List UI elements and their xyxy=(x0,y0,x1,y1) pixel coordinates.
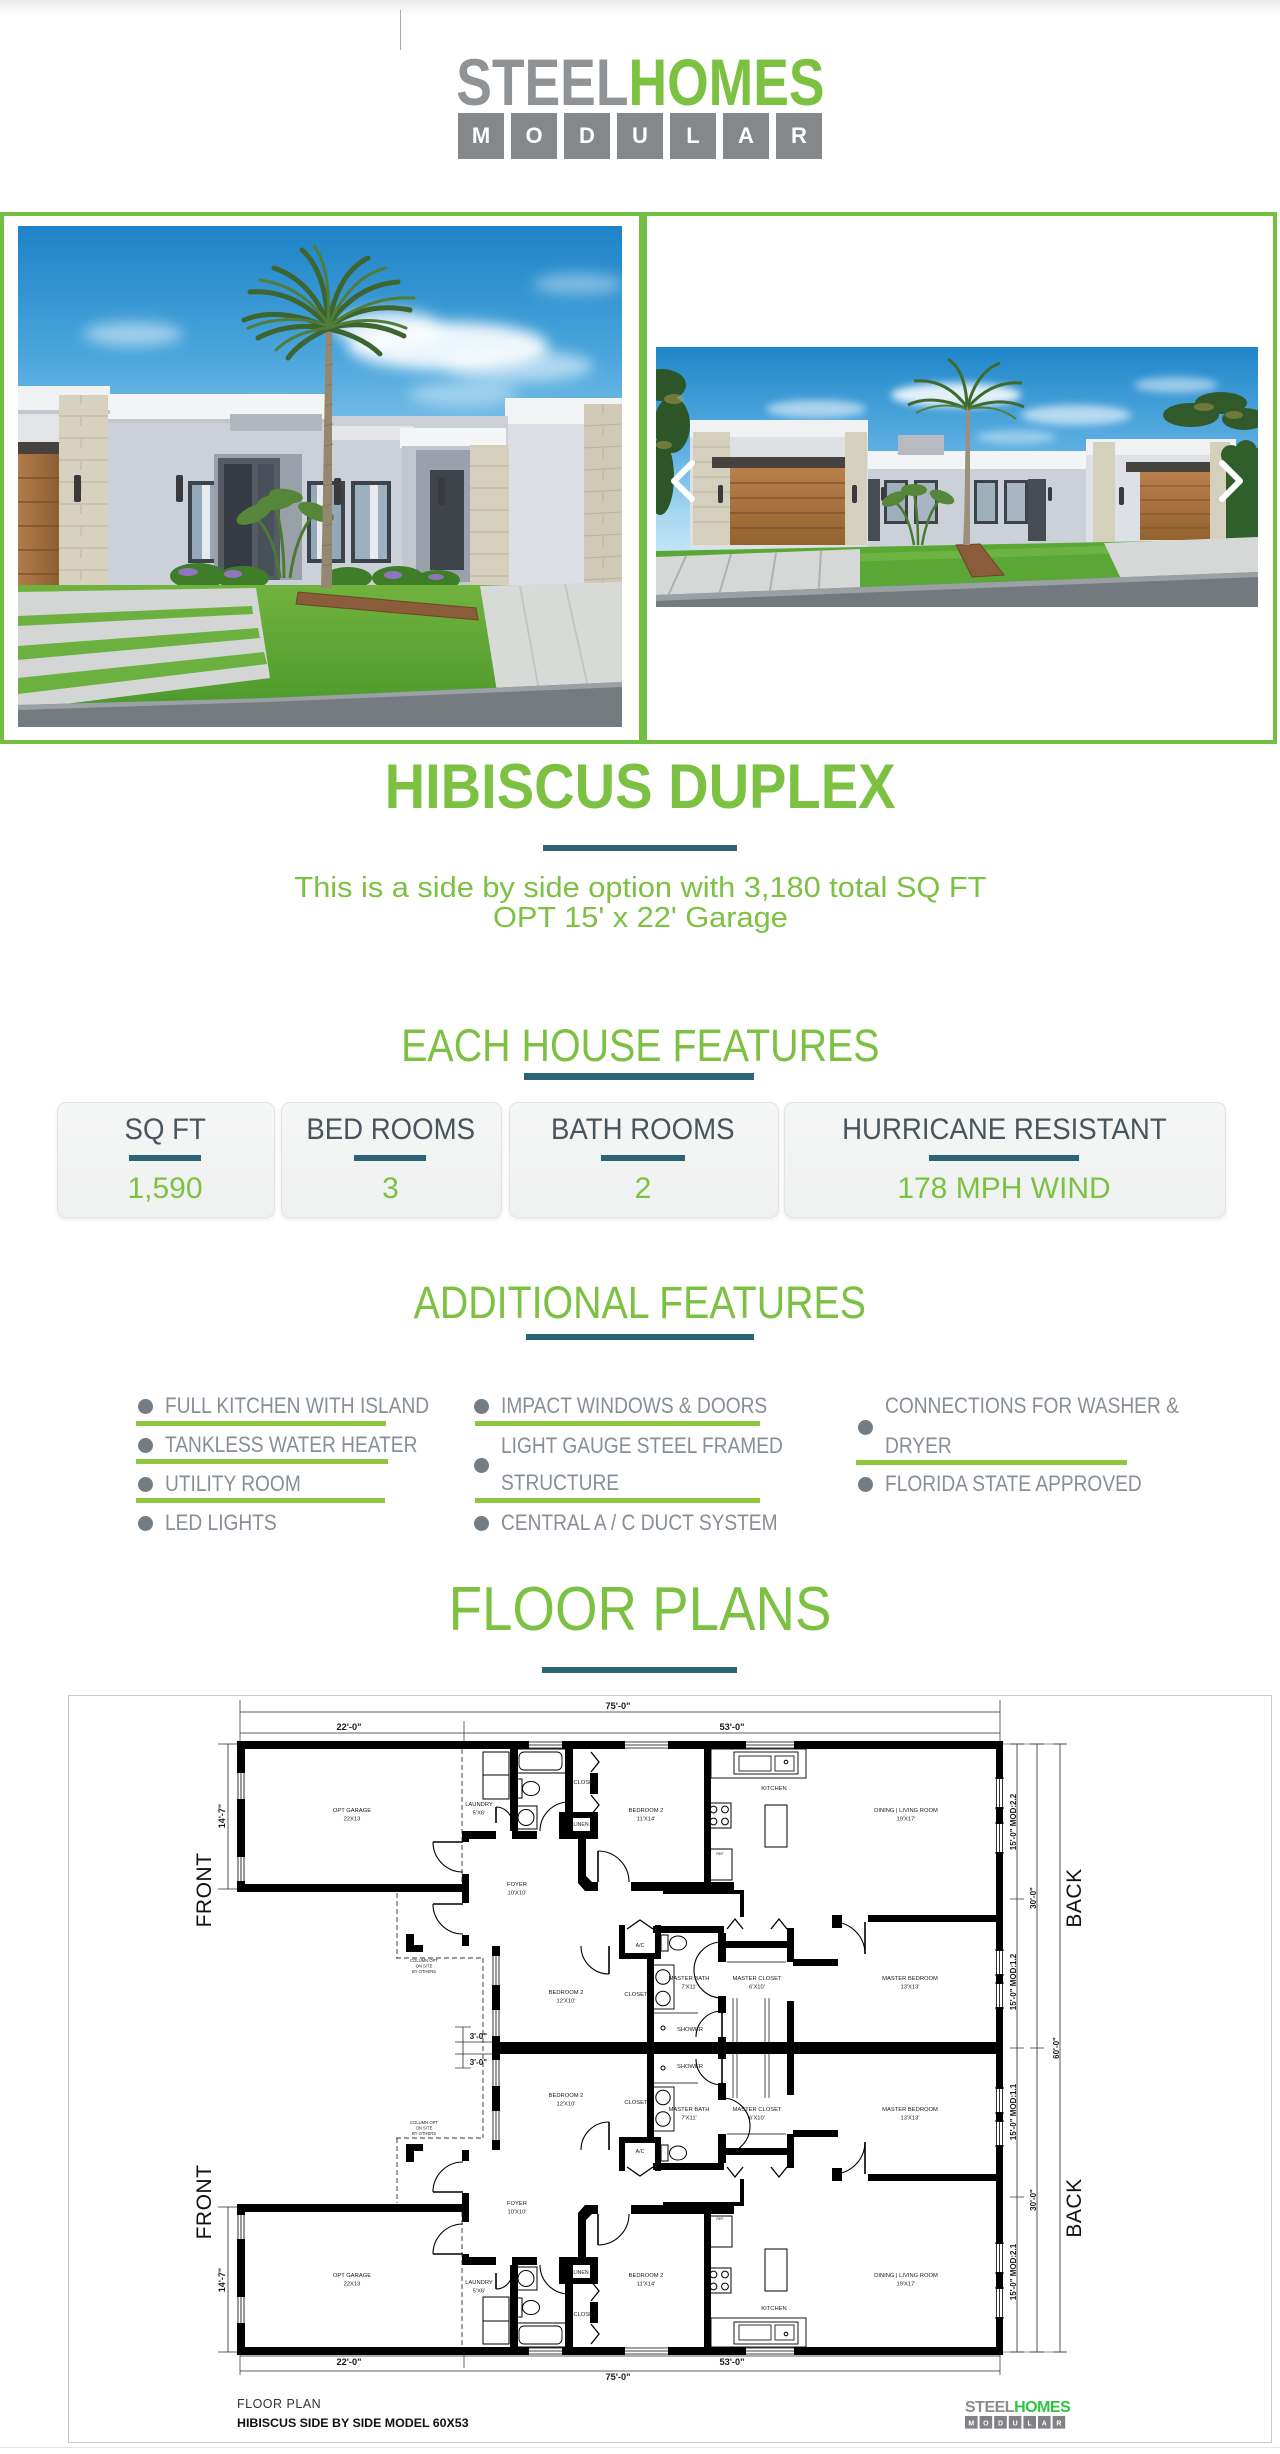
svg-text:REF: REF xyxy=(716,2217,724,2221)
svg-text:CLOSET: CLOSET xyxy=(573,1780,597,1786)
svg-text:SHOWER: SHOWER xyxy=(677,2064,703,2070)
svg-text:22'-0": 22'-0" xyxy=(337,2357,362,2367)
svg-text:FRONT: FRONT xyxy=(193,1853,216,1928)
svg-text:HIBISCUS SIDE BY SIDE MODEL: HIBISCUS SIDE BY SIDE MODEL 60X53 xyxy=(237,2416,469,2430)
svg-text:15'-0" MOD:2.2: 15'-0" MOD:2.2 xyxy=(1009,1793,1018,1850)
svg-text:LINEN: LINEN xyxy=(573,2270,589,2276)
svg-text:KITCHEN: KITCHEN xyxy=(761,2306,786,2312)
svg-text:15'-0" MOD:2.1: 15'-0" MOD:2.1 xyxy=(1009,2243,1018,2300)
svg-text:FRONT: FRONT xyxy=(193,2165,216,2240)
svg-text:CLOSET: CLOSET xyxy=(624,2100,648,2106)
svg-text:A: A xyxy=(1042,2421,1047,2428)
svg-text:SHOWER: SHOWER xyxy=(677,2027,703,2033)
svg-text:M: M xyxy=(968,2421,974,2428)
svg-text:3'-0": 3'-0" xyxy=(470,2058,487,2067)
svg-text:STEELHOMES: STEELHOMES xyxy=(965,2399,1071,2416)
svg-text:L: L xyxy=(1028,2421,1033,2428)
svg-text:15'-0" MOD:1.1: 15'-0" MOD:1.1 xyxy=(1009,2083,1018,2140)
svg-text:60'-0": 60'-0" xyxy=(1052,2037,1061,2059)
svg-text:14'-7": 14'-7" xyxy=(217,1804,227,1828)
svg-text:BACK: BACK xyxy=(1063,1868,1086,1927)
svg-text:15'-0" MOD:1.2: 15'-0" MOD:1.2 xyxy=(1009,1953,1018,2010)
svg-text:30'-0": 30'-0" xyxy=(1029,1887,1038,1909)
svg-text:53'-0": 53'-0" xyxy=(720,1722,745,1732)
svg-text:O: O xyxy=(983,2421,989,2428)
svg-text:LINEN: LINEN xyxy=(573,1822,589,1828)
svg-text:53'-0": 53'-0" xyxy=(720,2357,745,2367)
svg-text:3'-0": 3'-0" xyxy=(470,2032,487,2041)
svg-text:75'-0": 75'-0" xyxy=(606,2372,631,2382)
svg-text:D: D xyxy=(998,2421,1003,2428)
svg-text:REF: REF xyxy=(716,1852,724,1856)
svg-text:22'-0": 22'-0" xyxy=(337,1722,362,1732)
svg-text:A/C: A/C xyxy=(636,1943,645,1949)
svg-text:A/C: A/C xyxy=(636,2149,645,2155)
svg-text:R: R xyxy=(1056,2421,1061,2428)
svg-text:30'-0": 30'-0" xyxy=(1029,2189,1038,2211)
svg-text:FLOOR PLAN: FLOOR PLAN xyxy=(237,2397,321,2411)
svg-text:14'-7": 14'-7" xyxy=(217,2268,227,2292)
svg-text:75'-0": 75'-0" xyxy=(606,1701,631,1711)
svg-text:BACK: BACK xyxy=(1063,2178,1086,2237)
svg-text:U: U xyxy=(1013,2421,1018,2428)
svg-text:KITCHEN: KITCHEN xyxy=(761,1786,786,1792)
svg-text:CLOSET: CLOSET xyxy=(573,2312,597,2318)
svg-text:CLOSET: CLOSET xyxy=(624,1992,648,1998)
